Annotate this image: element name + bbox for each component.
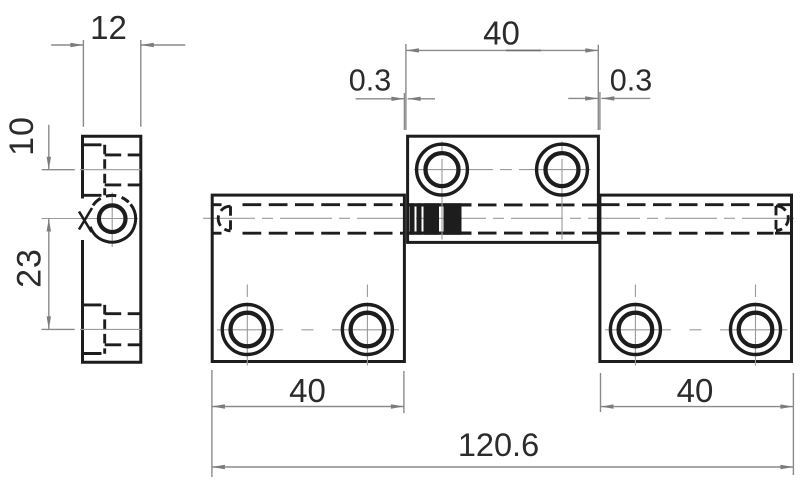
svg-text:10: 10 <box>3 116 41 156</box>
svg-text:0.3: 0.3 <box>349 64 391 98</box>
svg-text:40: 40 <box>483 14 520 51</box>
svg-text:23: 23 <box>11 248 49 288</box>
svg-text:12: 12 <box>90 9 127 46</box>
svg-text:40: 40 <box>289 372 326 409</box>
svg-text:0.3: 0.3 <box>610 64 652 98</box>
svg-text:40: 40 <box>677 372 714 409</box>
svg-text:120.6: 120.6 <box>458 427 539 463</box>
